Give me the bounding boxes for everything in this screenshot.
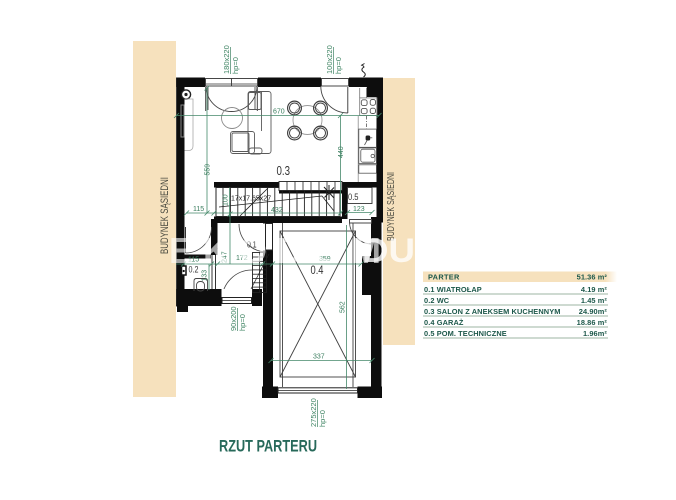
svg-text:0.3 SALON Z ANEKSEM KUCHENNYM: 0.3 SALON Z ANEKSEM KUCHENNYM	[424, 307, 561, 316]
svg-text:RZUT PARTERU: RZUT PARTERU	[219, 437, 317, 456]
svg-text:1.45 m²: 1.45 m²	[581, 296, 608, 305]
svg-text:hp=0: hp=0	[318, 410, 327, 427]
svg-text:PARTER: PARTER	[428, 273, 460, 282]
svg-text:24.90m²: 24.90m²	[579, 307, 608, 316]
svg-text:0.5 POM. TECHNICZNE: 0.5 POM. TECHNICZNE	[424, 329, 507, 338]
svg-text:432: 432	[271, 207, 283, 214]
svg-text:562: 562	[340, 301, 347, 313]
svg-text:51.36 m²: 51.36 m²	[577, 273, 608, 282]
svg-text:337: 337	[313, 354, 325, 361]
svg-text:115: 115	[193, 206, 204, 213]
svg-text:100: 100	[223, 194, 230, 206]
svg-text:1.96m²: 1.96m²	[583, 329, 607, 338]
svg-text:440: 440	[338, 146, 345, 158]
svg-text:0.3: 0.3	[277, 164, 291, 178]
svg-text:100x220: 100x220	[325, 45, 334, 74]
svg-text:4.19 m²: 4.19 m²	[581, 285, 608, 294]
svg-text:0.4 GARAŻ: 0.4 GARAŻ	[424, 318, 464, 327]
svg-text:133: 133	[202, 270, 209, 282]
svg-text:180x220: 180x220	[222, 45, 231, 74]
svg-text:hp=0: hp=0	[334, 57, 343, 74]
svg-text:hp=0: hp=0	[231, 57, 240, 74]
svg-text:0.2 WC: 0.2 WC	[424, 296, 450, 305]
svg-text:275x220: 275x220	[309, 398, 318, 427]
svg-text:hp=0: hp=0	[238, 314, 247, 331]
svg-text:18.86 m²: 18.86 m²	[577, 318, 608, 327]
svg-text:123: 123	[353, 206, 365, 213]
svg-text:0.1 WIATROŁAP: 0.1 WIATROŁAP	[424, 285, 482, 294]
svg-text:17x17.65x27: 17x17.65x27	[231, 196, 271, 203]
svg-text:DU: DU	[362, 232, 415, 270]
svg-text:670: 670	[273, 109, 285, 116]
svg-text:559: 559	[205, 164, 212, 176]
svg-text:90x200: 90x200	[229, 306, 238, 331]
svg-text:EKODOM: EKODOM	[169, 230, 391, 271]
svg-text:0.5: 0.5	[348, 192, 359, 202]
